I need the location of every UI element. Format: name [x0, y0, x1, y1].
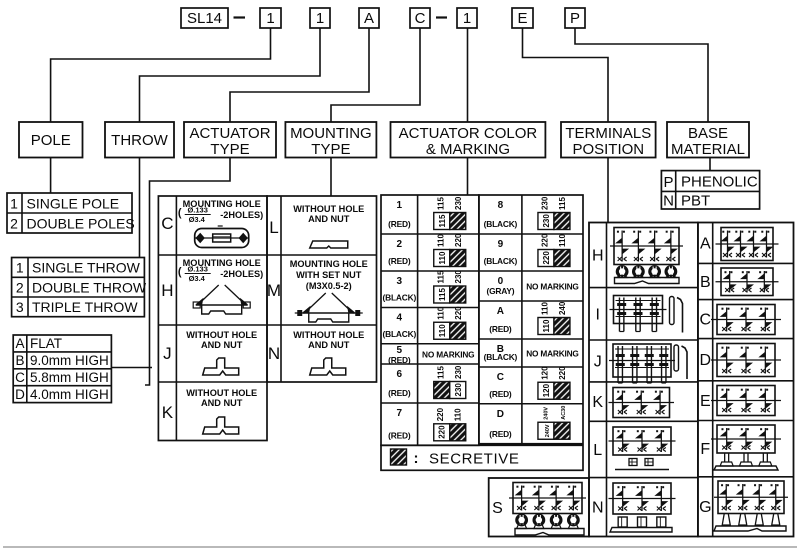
svg-text:120: 120	[542, 383, 551, 397]
svg-text:DOUBLE POLES: DOUBLE POLES	[27, 216, 135, 232]
svg-text:& MARKING: & MARKING	[426, 141, 510, 158]
svg-text:Ø.133: Ø.133	[187, 265, 207, 274]
svg-text:6: 6	[397, 369, 403, 380]
svg-text:1: 1	[266, 10, 274, 27]
svg-text:D: D	[700, 352, 712, 369]
svg-text:220: 220	[436, 407, 445, 421]
svg-text:230: 230	[454, 365, 463, 379]
svg-text:(: (	[178, 207, 182, 219]
svg-text:(BLACK): (BLACK)	[484, 219, 518, 229]
svg-text:A: A	[15, 336, 24, 351]
svg-text:220: 220	[454, 306, 463, 320]
svg-text:110: 110	[438, 251, 447, 264]
svg-text::: :	[414, 450, 419, 467]
svg-text:B: B	[15, 353, 24, 368]
svg-text:4: 4	[397, 313, 403, 324]
svg-text:WITHOUT HOLE: WITHOUT HOLE	[186, 330, 257, 340]
svg-text:110: 110	[454, 408, 463, 421]
svg-text:A: A	[700, 235, 711, 252]
svg-text:AND NUT: AND NUT	[201, 340, 243, 350]
svg-text:115: 115	[438, 288, 447, 301]
svg-text:230: 230	[454, 270, 463, 284]
svg-text:MOUNTING HOLE: MOUNTING HOLE	[290, 259, 368, 269]
svg-text:B: B	[700, 274, 711, 291]
svg-text:WITHOUT HOLE: WITHOUT HOLE	[186, 388, 257, 398]
svg-text:115: 115	[438, 214, 447, 227]
svg-text:220: 220	[438, 425, 447, 439]
svg-text:230: 230	[454, 196, 463, 210]
svg-text:1: 1	[16, 260, 24, 276]
svg-text:(BLACK): (BLACK)	[383, 293, 417, 303]
svg-text:F: F	[700, 441, 710, 458]
svg-text:WITHOUT HOLE: WITHOUT HOLE	[293, 204, 364, 214]
svg-text:L: L	[593, 442, 602, 459]
svg-text:BASE: BASE	[688, 125, 728, 142]
svg-text:(RED): (RED)	[489, 429, 512, 439]
svg-text:AND NUT: AND NUT	[308, 340, 350, 350]
svg-text:110: 110	[558, 234, 567, 247]
svg-text:SINGLE THROW: SINGLE THROW	[32, 260, 141, 276]
svg-text:Ø.133: Ø.133	[187, 206, 207, 215]
svg-text:SL14: SL14	[187, 10, 222, 27]
svg-text:P: P	[570, 10, 580, 27]
svg-text:AC30: AC30	[561, 406, 567, 420]
svg-text:(RED): (RED)	[388, 256, 411, 266]
svg-text:TRIPLE THROW: TRIPLE THROW	[32, 299, 138, 315]
svg-text:H: H	[592, 248, 604, 265]
svg-text:220: 220	[542, 251, 551, 265]
svg-text:SINGLE POLE: SINGLE POLE	[27, 196, 120, 212]
svg-text:ACTUATOR COLOR: ACTUATOR COLOR	[399, 125, 538, 142]
svg-text:POLE: POLE	[31, 132, 71, 149]
svg-text:TYPE: TYPE	[311, 141, 350, 158]
svg-text:E: E	[700, 393, 711, 410]
svg-text:110: 110	[436, 234, 445, 247]
svg-text:2: 2	[10, 216, 18, 232]
svg-text:N: N	[663, 193, 674, 210]
svg-text:D: D	[15, 387, 25, 402]
svg-text:5.8mm HIGH: 5.8mm HIGH	[30, 370, 109, 385]
svg-text:NO MARKING: NO MARKING	[526, 349, 578, 359]
svg-text:S: S	[492, 500, 503, 517]
svg-text:1: 1	[10, 196, 18, 212]
svg-text:THROW: THROW	[111, 132, 168, 149]
svg-text:Ø3.4: Ø3.4	[189, 274, 206, 283]
svg-text:(RED): (RED)	[489, 324, 512, 334]
svg-text:FLAT: FLAT	[30, 336, 62, 351]
svg-text:9.0mm HIGH: 9.0mm HIGH	[30, 353, 109, 368]
svg-text:(RED): (RED)	[388, 388, 411, 398]
svg-text:H: H	[161, 281, 173, 300]
svg-text:N: N	[592, 500, 604, 517]
svg-text:P: P	[663, 174, 673, 191]
svg-text:PBT: PBT	[681, 193, 710, 210]
svg-text:(RED): (RED)	[388, 355, 411, 365]
svg-text:Ø3.4: Ø3.4	[189, 215, 206, 224]
svg-text:ACTUATOR: ACTUATOR	[189, 125, 270, 142]
svg-text:220: 220	[540, 233, 549, 247]
svg-text:MOUNTING: MOUNTING	[290, 125, 372, 142]
svg-text:230: 230	[540, 196, 549, 210]
svg-text:WITH SET NUT: WITH SET NUT	[296, 270, 362, 280]
svg-text:120: 120	[540, 366, 549, 380]
svg-text:(: (	[178, 266, 182, 278]
svg-text:1: 1	[463, 10, 471, 27]
svg-text:1: 1	[397, 200, 403, 211]
svg-text:I: I	[596, 306, 600, 323]
svg-text:230: 230	[542, 214, 551, 228]
svg-text:MATERIAL: MATERIAL	[671, 141, 745, 158]
svg-text:110: 110	[438, 324, 447, 337]
svg-text:(BLACK): (BLACK)	[484, 256, 518, 266]
svg-text:DOUBLE THROW: DOUBLE THROW	[32, 279, 147, 295]
svg-text:WITHOUT HOLE: WITHOUT HOLE	[293, 330, 364, 340]
svg-text:POSITION: POSITION	[572, 141, 644, 158]
svg-text:-2HOLES): -2HOLES)	[220, 210, 263, 220]
svg-text:-2HOLES): -2HOLES)	[220, 269, 263, 279]
svg-text:TERMINALS: TERMINALS	[565, 125, 651, 142]
svg-text:115: 115	[436, 366, 445, 379]
svg-text:K: K	[162, 403, 174, 422]
svg-text:D: D	[497, 409, 504, 420]
svg-text:1: 1	[316, 10, 324, 27]
svg-text:3: 3	[16, 299, 24, 315]
svg-text:M: M	[267, 281, 281, 300]
svg-text:7: 7	[397, 408, 403, 419]
svg-text:2: 2	[397, 239, 403, 250]
svg-text:(BLACK): (BLACK)	[484, 352, 518, 362]
svg-text:240V: 240V	[543, 407, 549, 420]
svg-text:A: A	[364, 10, 374, 27]
svg-text:(RED): (RED)	[489, 389, 512, 399]
svg-text:220: 220	[558, 366, 567, 380]
svg-text:220: 220	[454, 233, 463, 247]
svg-text:115: 115	[558, 197, 567, 210]
svg-text:NO MARKING: NO MARKING	[422, 349, 474, 359]
svg-text:C: C	[700, 312, 712, 329]
svg-text:115: 115	[436, 197, 445, 210]
svg-text:J: J	[594, 353, 602, 370]
svg-text:A: A	[497, 306, 504, 317]
svg-text:230: 230	[454, 383, 463, 397]
svg-text:K: K	[592, 394, 603, 411]
svg-text:SECRETIVE: SECRETIVE	[429, 451, 519, 468]
svg-text:C: C	[161, 214, 173, 233]
svg-text:(BLACK): (BLACK)	[383, 329, 417, 339]
svg-text:N: N	[268, 344, 280, 363]
svg-text:(RED): (RED)	[388, 430, 411, 440]
svg-text:110: 110	[436, 306, 445, 319]
svg-text:8: 8	[498, 200, 504, 211]
svg-text:PHENOLIC: PHENOLIC	[681, 174, 758, 191]
svg-text:2: 2	[16, 279, 24, 295]
svg-text:240: 240	[558, 301, 567, 315]
svg-text:TYPE: TYPE	[210, 141, 249, 158]
svg-text:(GRAY): (GRAY)	[486, 286, 514, 296]
svg-text:4.0mm HIGH: 4.0mm HIGH	[30, 387, 109, 402]
svg-text:C: C	[497, 372, 504, 383]
svg-text:(M3X0.5-2): (M3X0.5-2)	[306, 281, 352, 291]
svg-text:C: C	[415, 10, 426, 27]
svg-text:115: 115	[436, 270, 445, 283]
svg-text:3: 3	[397, 276, 403, 287]
svg-text:NO MARKING: NO MARKING	[526, 282, 578, 292]
svg-text:G: G	[699, 499, 711, 516]
svg-text:110: 110	[542, 319, 551, 332]
svg-text:C: C	[15, 370, 25, 385]
svg-text:(RED): (RED)	[388, 219, 411, 229]
svg-text:110: 110	[540, 302, 549, 315]
svg-text:J: J	[163, 344, 172, 363]
svg-text:AND NUT: AND NUT	[201, 398, 243, 408]
svg-text:L: L	[269, 218, 278, 237]
svg-text:E: E	[517, 10, 527, 27]
svg-text:9: 9	[498, 239, 504, 250]
svg-text:AND NUT: AND NUT	[308, 214, 350, 224]
svg-text:240V: 240V	[545, 424, 551, 437]
